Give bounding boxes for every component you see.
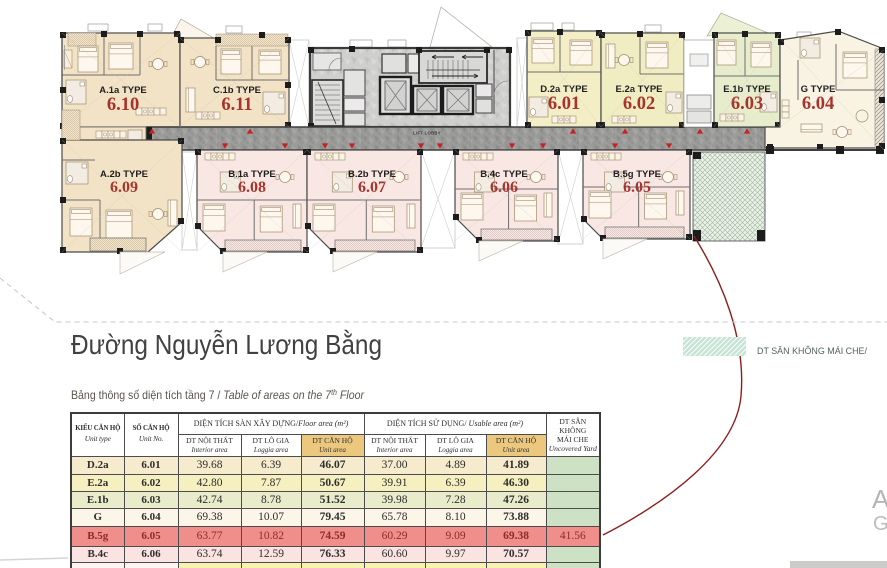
svg-text:6.04: 6.04 xyxy=(802,94,834,114)
svg-text:6.07: 6.07 xyxy=(358,179,386,196)
svg-text:6.08: 6.08 xyxy=(238,179,266,196)
svg-text:LIFT LOBBY: LIFT LOBBY xyxy=(413,131,441,136)
svg-text:G: G xyxy=(873,513,887,535)
svg-text:6.03: 6.03 xyxy=(731,94,763,114)
svg-text:6.10: 6.10 xyxy=(107,95,139,115)
svg-text:6.09: 6.09 xyxy=(110,179,138,196)
svg-text:6.05: 6.05 xyxy=(623,179,651,196)
svg-text:A: A xyxy=(872,484,887,514)
svg-text:Đường Nguyễn Lương Bằng: Đường Nguyễn Lương Bằng xyxy=(71,329,382,360)
svg-text:6.11: 6.11 xyxy=(221,95,252,115)
svg-text:DT SÂN KHÔNG MÁI CHE/: DT SÂN KHÔNG MÁI CHE/ xyxy=(757,346,867,356)
svg-text:Bảng thông số diện tích tầng 7: Bảng thông số diện tích tầng 7 / Table o… xyxy=(71,388,365,403)
svg-text:6.01: 6.01 xyxy=(548,94,580,114)
